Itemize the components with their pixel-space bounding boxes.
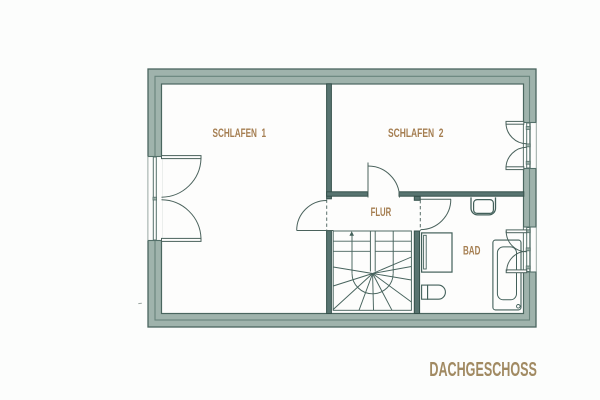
svg-text:DACHGESCHOSS: DACHGESCHOSS — [429, 359, 537, 381]
svg-text:SCHLAFEN 1: SCHLAFEN 1 — [213, 126, 267, 140]
svg-text:SCHLAFEN 2: SCHLAFEN 2 — [388, 126, 444, 140]
svg-text:BAD: BAD — [463, 244, 481, 258]
svg-text:FLUR: FLUR — [371, 205, 392, 219]
